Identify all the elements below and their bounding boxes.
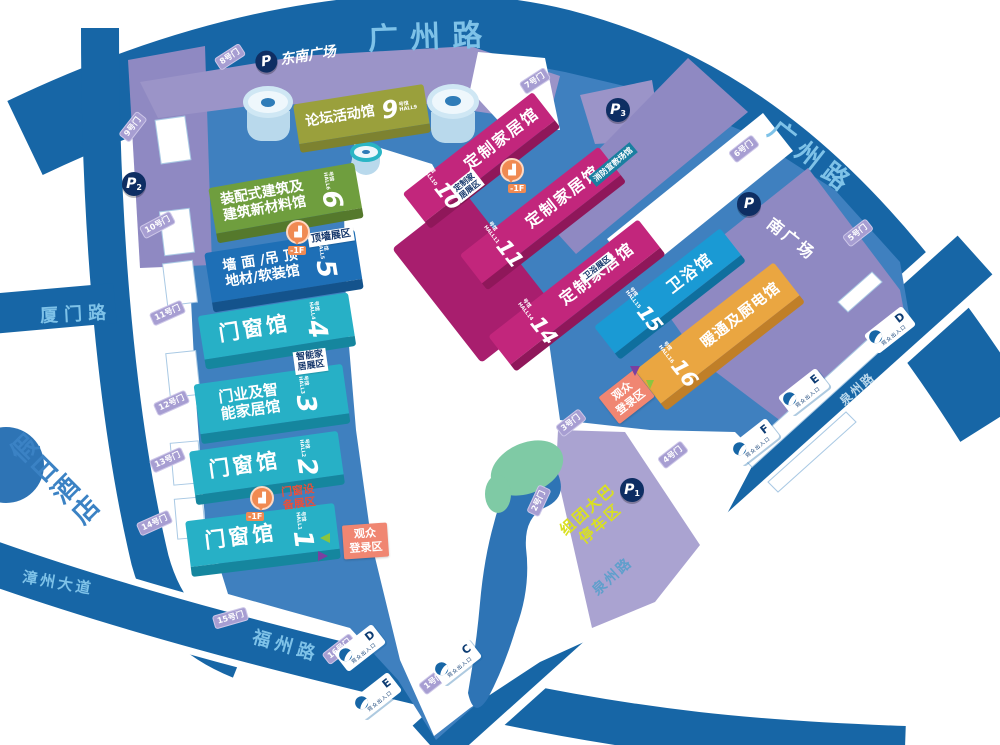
basemap bbox=[0, 0, 1000, 745]
parking-icon-p2: P2 bbox=[122, 172, 146, 196]
floor-tag-hall6: -1F bbox=[288, 246, 306, 255]
escalator-icon-hall1: ▟ bbox=[250, 486, 274, 510]
parking-icon-south: P bbox=[737, 192, 761, 216]
parking-icon-p3: P3 bbox=[606, 98, 630, 122]
green-area-small bbox=[485, 475, 511, 513]
arrow-green-icon bbox=[646, 380, 654, 389]
parking-icon: P bbox=[254, 49, 279, 74]
visitor-registration-1: 观众登录区 bbox=[342, 522, 389, 559]
road-label-xiamen: 厦门路 bbox=[39, 298, 112, 328]
arrow-green-icon bbox=[320, 533, 330, 543]
zone-door-equipment: 门窗设备展区 bbox=[281, 482, 317, 512]
road-label-guangzhou-top: 广州路 bbox=[367, 10, 494, 58]
floor-tag-hall10: -1F bbox=[508, 184, 526, 193]
escalator-icon-hall10: ▟ bbox=[500, 158, 524, 182]
expo-map: 广州路 广州路 厦门路 漳州大道 福州路 泉州路 泉州路 假日酒店 P 东南广场… bbox=[0, 0, 1000, 745]
arrow-purple-icon bbox=[630, 366, 640, 376]
zone-smart-home: 智能家居展区 bbox=[293, 348, 329, 375]
arrow-purple-icon bbox=[318, 551, 328, 561]
vent-tower bbox=[427, 84, 479, 144]
escalator-icon-hall6: ▟ bbox=[286, 220, 310, 244]
vent-tower bbox=[243, 86, 293, 142]
floor-tag-hall1: -1F bbox=[246, 512, 264, 521]
